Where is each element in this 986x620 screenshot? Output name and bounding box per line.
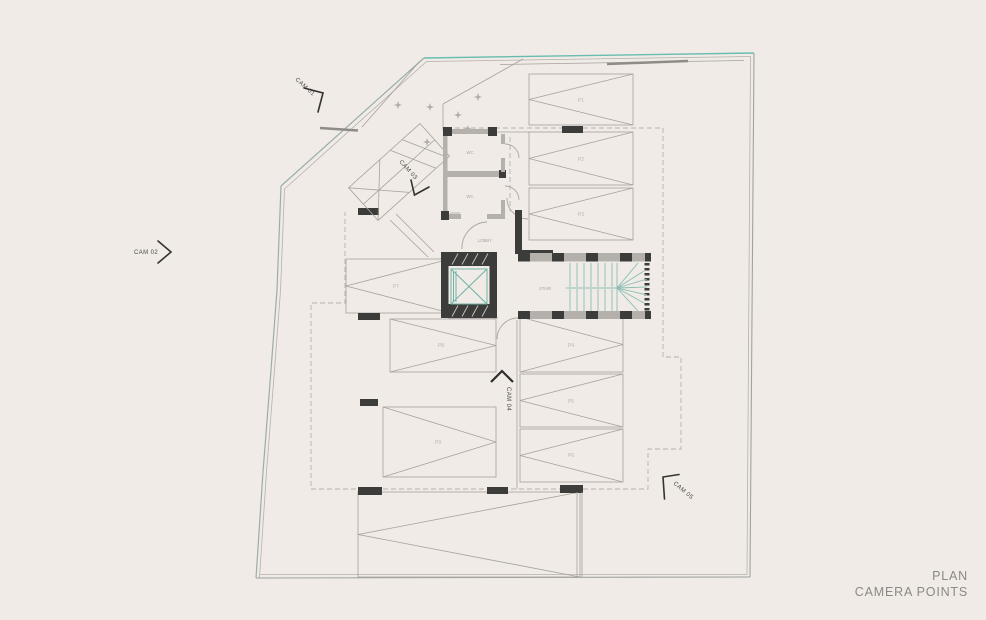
wc-upper-label: WC xyxy=(466,150,473,155)
stair-winder-tread xyxy=(617,287,647,288)
column xyxy=(487,487,508,494)
camera-point-02: CAM 02 xyxy=(134,241,171,263)
parking-label-p7: P7 xyxy=(393,284,399,290)
camera-point-01: CAM 01 xyxy=(294,77,323,112)
cam-04-direction-icon xyxy=(491,371,513,382)
elevator xyxy=(441,252,497,318)
stair-treads xyxy=(566,263,647,311)
cam-05-label: CAM 05 xyxy=(672,481,694,501)
parking-label-p2: P2 xyxy=(578,157,584,163)
stair-wall-segment xyxy=(620,311,632,319)
landscape-markers xyxy=(394,93,482,146)
drawing-title-line1: PLAN xyxy=(932,569,968,583)
parking-label-p5: P5 xyxy=(568,399,574,405)
parking-label-p9: P9 xyxy=(435,440,441,446)
aisle-door-arc xyxy=(497,318,518,339)
wall-hatch xyxy=(645,303,650,306)
floor-plan-canvas: P1 P2 P3 P4 P5 P6 P7 P8 P9 STAIR LOBBY W… xyxy=(0,0,986,620)
cam-02-direction-icon xyxy=(158,241,171,263)
plant-marker-icon xyxy=(474,93,482,101)
column xyxy=(560,485,583,493)
parking-label-p3: P3 xyxy=(578,212,584,218)
wall-hatch xyxy=(645,283,650,286)
parking-label-p8: P8 xyxy=(438,343,444,349)
column xyxy=(360,399,378,406)
column xyxy=(358,208,379,215)
stair-label: STAIR xyxy=(539,286,551,291)
aisle-lines xyxy=(517,320,582,577)
wall-hatch xyxy=(645,298,650,301)
drawing-title-line2: CAMERA POINTS xyxy=(855,585,968,599)
parking-label-p4: P4 xyxy=(568,343,574,349)
parking-stall-marking xyxy=(358,492,580,577)
plant-marker-icon xyxy=(426,103,434,111)
stair-wall-segment xyxy=(645,253,651,262)
stair-wall-segment xyxy=(518,311,530,319)
lobby-label: LOBBY xyxy=(478,238,492,243)
wc-upper-door-arc xyxy=(505,144,519,158)
title-block: PLAN CAMERA POINTS xyxy=(855,569,968,599)
top-wall-segment xyxy=(607,61,688,64)
parking-label-p6: P6 xyxy=(568,453,574,459)
camera-point-05: CAM 05 xyxy=(663,475,694,502)
stair-winder-tread xyxy=(617,271,644,288)
stair-winder-tread xyxy=(617,279,647,288)
wall-hatch xyxy=(645,273,650,276)
stair-winder-tread xyxy=(617,263,638,288)
cam-04-label: CAM 04 xyxy=(505,387,511,411)
column xyxy=(358,487,382,495)
wall-hatch xyxy=(645,268,650,271)
boundary-left-edge xyxy=(256,186,281,578)
stair-wall-segment xyxy=(586,253,598,262)
stair-wall-segment xyxy=(552,311,564,319)
parking-stalls xyxy=(346,74,633,577)
camera-point-03: CAM 03 xyxy=(398,159,429,195)
stair-wall-segment xyxy=(645,311,651,319)
stair-winder-tread xyxy=(617,288,647,295)
stair-winder-tread xyxy=(617,288,638,311)
stair-wall-segment xyxy=(518,253,530,262)
lobby-door-arc xyxy=(462,222,487,249)
building-core xyxy=(441,210,651,339)
stair-wall-segment xyxy=(586,311,598,319)
camera-points: CAM 01 CAM 02 CAM 03 CAM 04 CAM 05 xyxy=(134,77,694,501)
plant-marker-icon xyxy=(454,111,462,119)
camera-point-04: CAM 04 xyxy=(491,371,513,411)
cam-02-label: CAM 02 xyxy=(134,250,158,256)
wall-hatch xyxy=(645,288,650,291)
entry-ramp xyxy=(320,59,523,257)
parking-label-p1: P1 xyxy=(578,98,584,104)
stair-winder-tread xyxy=(617,288,644,303)
plant-marker-icon xyxy=(394,101,402,109)
wc-lower-door-arc xyxy=(505,186,519,200)
column xyxy=(358,313,380,320)
stair-wall-segment xyxy=(620,253,632,262)
parking-stall xyxy=(358,492,580,577)
boundary-right-edge xyxy=(750,53,754,577)
wall-hatch xyxy=(645,308,650,311)
column xyxy=(562,126,583,133)
stair-wall-segment xyxy=(552,253,564,262)
wall-hatch xyxy=(645,263,650,266)
wc-lower-label: WC xyxy=(466,194,473,199)
